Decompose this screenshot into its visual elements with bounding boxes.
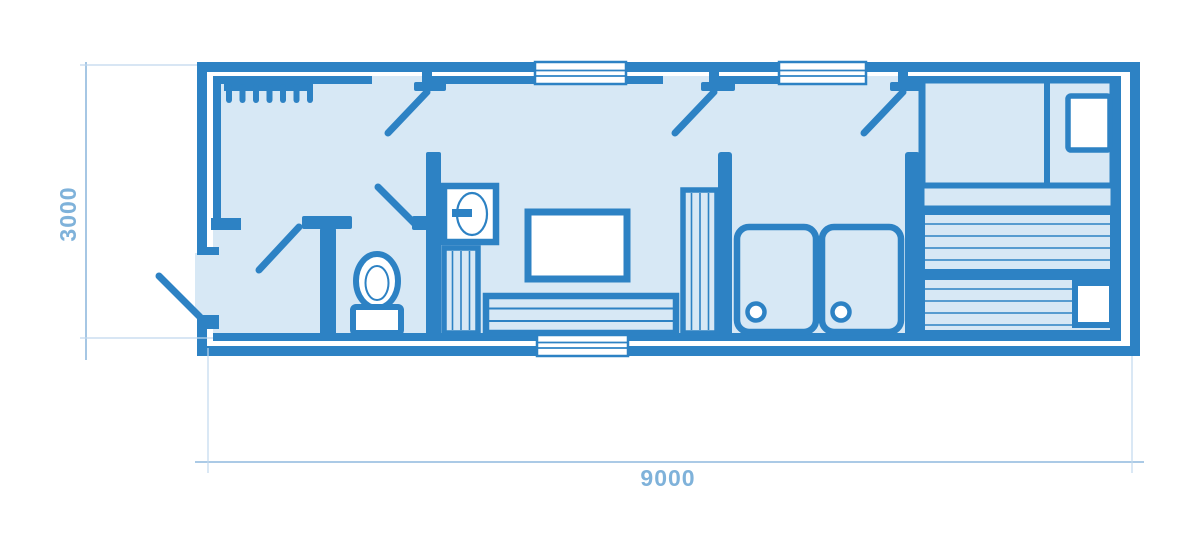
- window-bottom: [537, 334, 628, 356]
- striped-cabinet: [444, 248, 478, 333]
- bed-step: [922, 186, 1113, 208]
- window-top-2: [779, 62, 866, 84]
- entry-vestibule-floor: [195, 253, 215, 315]
- sauna-bench-lower: [922, 277, 1113, 333]
- shower-room-right-wall: [905, 152, 920, 341]
- shower-room-left-wall: [718, 152, 732, 341]
- table: [528, 212, 627, 279]
- entrance-door-leaf: [159, 276, 200, 317]
- toilet: [353, 254, 401, 333]
- window-top-1: [535, 62, 626, 84]
- entry-opening-cap: [197, 247, 219, 255]
- faucet: [452, 209, 472, 217]
- floor-plan-canvas: 3000 9000: [0, 0, 1200, 549]
- washbasin: [444, 186, 496, 242]
- slatted-bench: [486, 296, 676, 333]
- bed: [922, 80, 1113, 186]
- drain-icon: [833, 304, 850, 321]
- pillow: [1068, 96, 1110, 150]
- locker-unit: [683, 190, 717, 333]
- drain-icon: [748, 304, 765, 321]
- dimension-label-horizontal: 9000: [640, 465, 695, 491]
- sauna-bench-upper: [922, 212, 1113, 272]
- hall-wall-end-cap: [211, 218, 241, 230]
- shower-tray-left: [737, 227, 816, 332]
- shower-tray-right: [822, 227, 901, 332]
- stove: [1075, 283, 1112, 325]
- floor-plan-drawing: 3000 9000: [0, 0, 1200, 549]
- dimension-label-vertical: 3000: [55, 186, 81, 241]
